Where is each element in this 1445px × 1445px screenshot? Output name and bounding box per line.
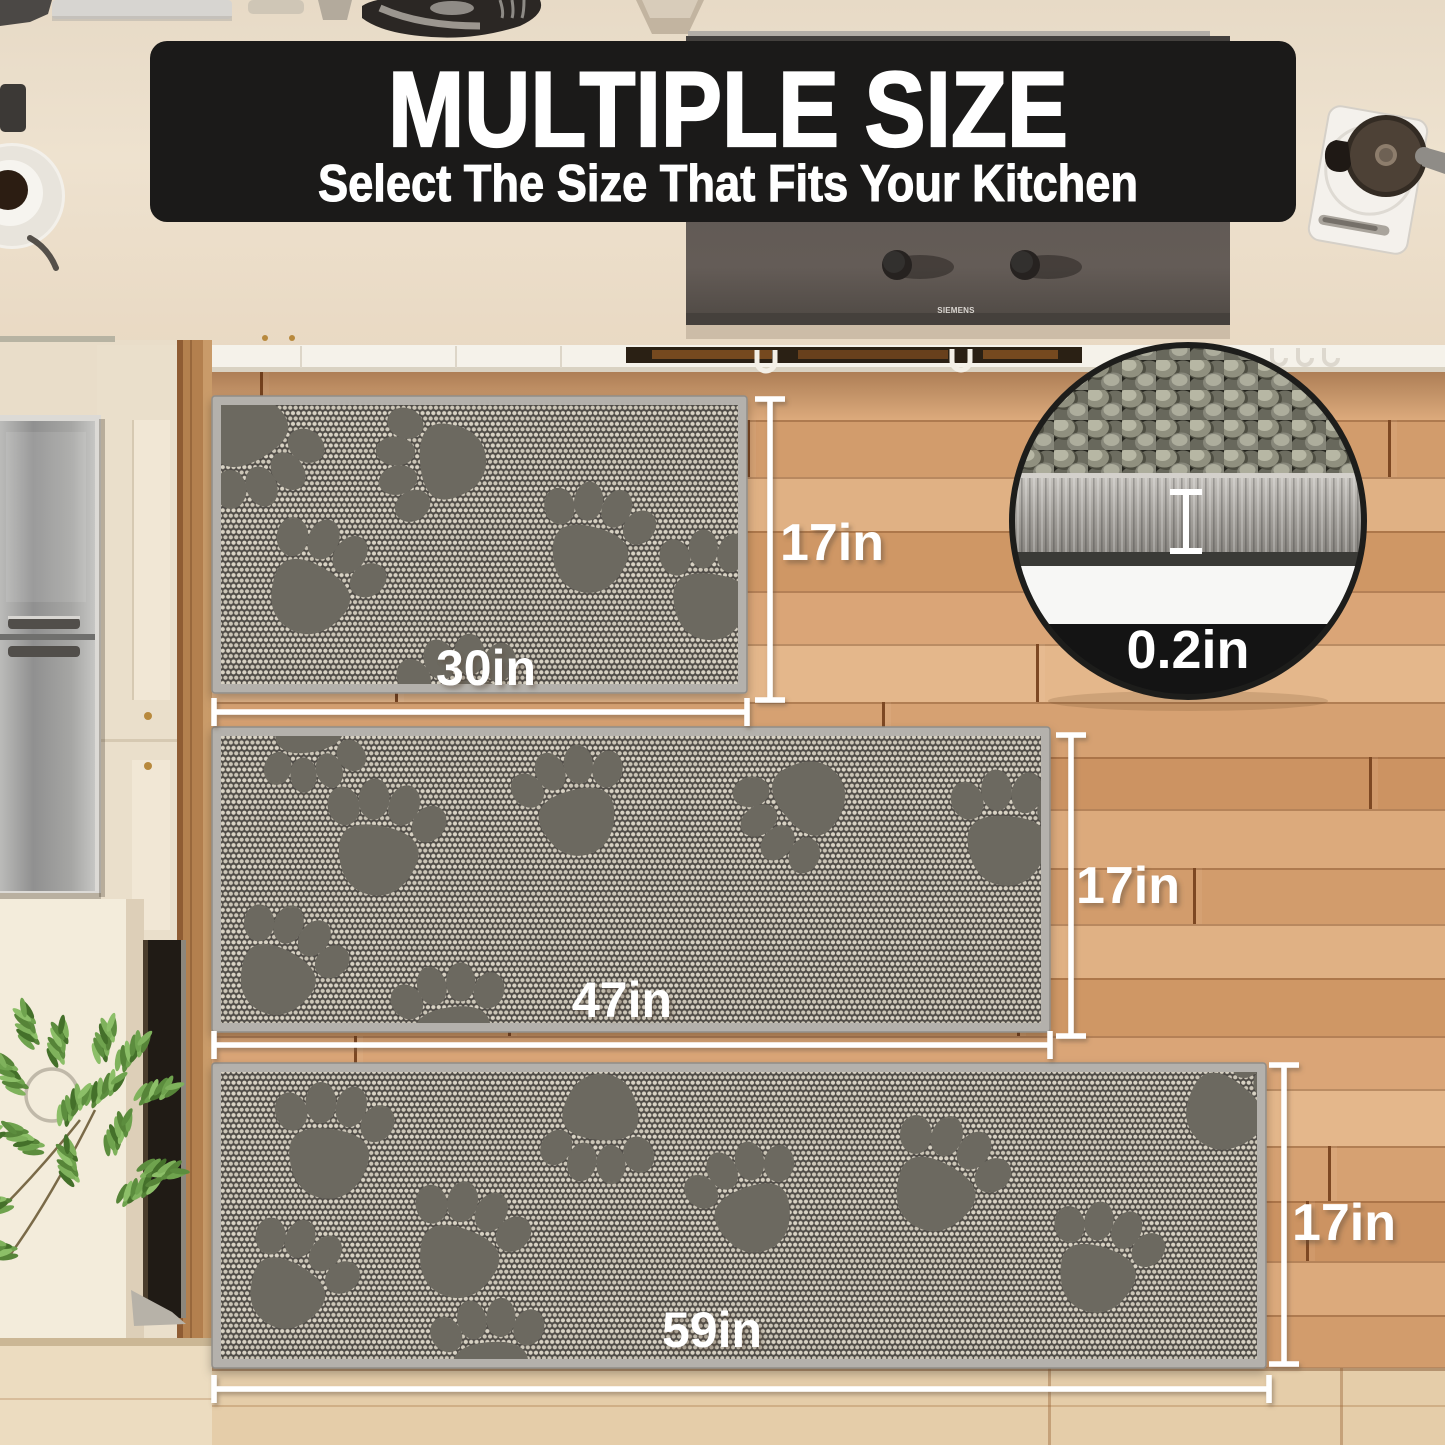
svg-text:30in: 30in xyxy=(436,640,536,696)
svg-text:59in: 59in xyxy=(662,1302,762,1358)
svg-text:17in: 17in xyxy=(780,514,884,572)
svg-text:17in: 17in xyxy=(1076,857,1180,915)
svg-text:0.2in: 0.2in xyxy=(1126,620,1249,680)
svg-text:Select The Size That Fits Your: Select The Size That Fits Your Kitchen xyxy=(318,155,1138,213)
svg-text:17in: 17in xyxy=(1292,1194,1396,1252)
svg-text:MULTIPLE SIZE: MULTIPLE SIZE xyxy=(388,49,1068,169)
svg-text:SIEMENS: SIEMENS xyxy=(937,306,975,315)
svg-text:47in: 47in xyxy=(572,972,672,1028)
